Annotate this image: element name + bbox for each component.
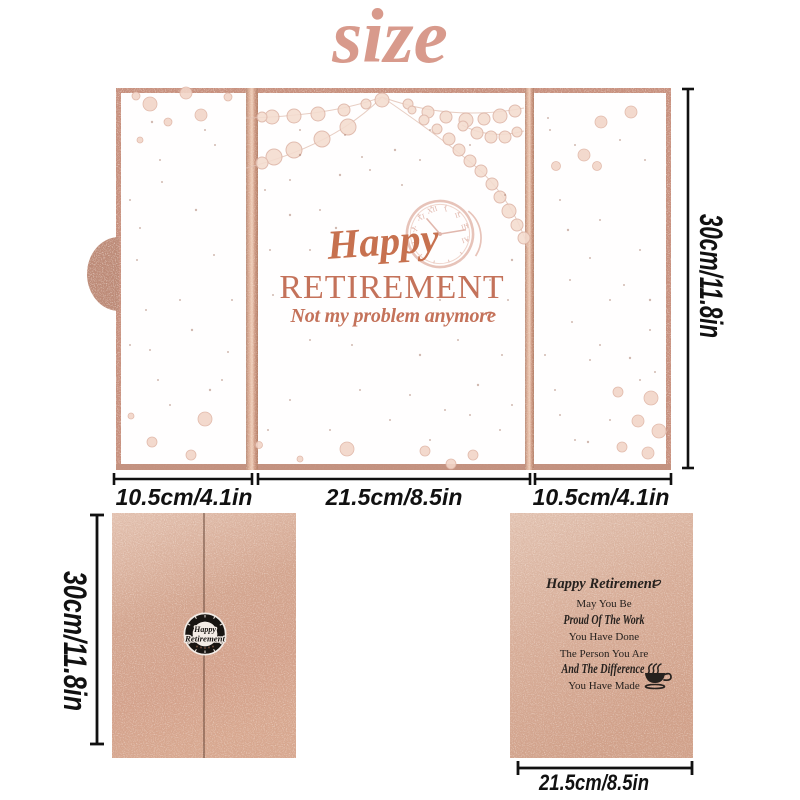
svg-text:21.5cm/8.5in: 21.5cm/8.5in bbox=[325, 484, 463, 510]
svg-text:Proud Of The Work: Proud Of The Work bbox=[564, 612, 645, 627]
svg-text:30cm/11.8in: 30cm/11.8in bbox=[57, 571, 93, 711]
svg-text:10.5cm/4.1in: 10.5cm/4.1in bbox=[533, 484, 670, 510]
svg-text:Happy: Happy bbox=[325, 214, 441, 268]
svg-text:May You Be: May You Be bbox=[576, 598, 631, 610]
svg-text:RETIREMENT: RETIREMENT bbox=[279, 269, 504, 306]
svg-text:size: size bbox=[331, 0, 448, 79]
svg-text:Not my problem anymore: Not my problem anymore bbox=[289, 305, 495, 327]
svg-text:Happy Retirement: Happy Retirement bbox=[545, 576, 657, 592]
svg-text:You Have Done: You Have Done bbox=[569, 631, 639, 643]
svg-text:The Person You Are: The Person You Are bbox=[560, 648, 649, 660]
svg-text:10.5cm/4.1in: 10.5cm/4.1in bbox=[116, 484, 253, 510]
svg-text:Retirement: Retirement bbox=[184, 634, 226, 644]
svg-text:21.5cm/8.5in: 21.5cm/8.5in bbox=[538, 770, 649, 795]
svg-text:30cm/11.8in: 30cm/11.8in bbox=[693, 214, 729, 338]
svg-text:You Have Made: You Have Made bbox=[568, 680, 640, 692]
svg-text:And The Difference: And The Difference bbox=[561, 661, 645, 676]
